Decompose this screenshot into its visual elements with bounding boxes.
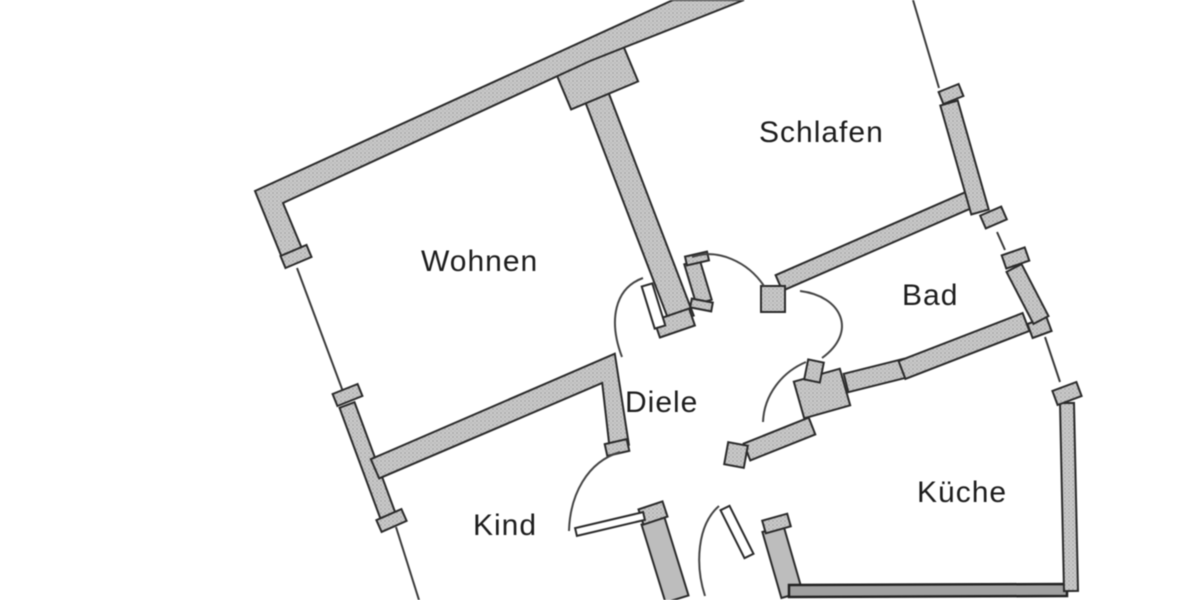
svg-text:Schlafen: Schlafen — [759, 116, 884, 149]
svg-text:Wohnen: Wohnen — [421, 245, 538, 278]
svg-text:Küche: Küche — [917, 476, 1007, 509]
svg-text:Diele: Diele — [625, 386, 698, 419]
svg-text:Kind: Kind — [473, 509, 537, 542]
svg-text:Bad: Bad — [902, 279, 958, 312]
